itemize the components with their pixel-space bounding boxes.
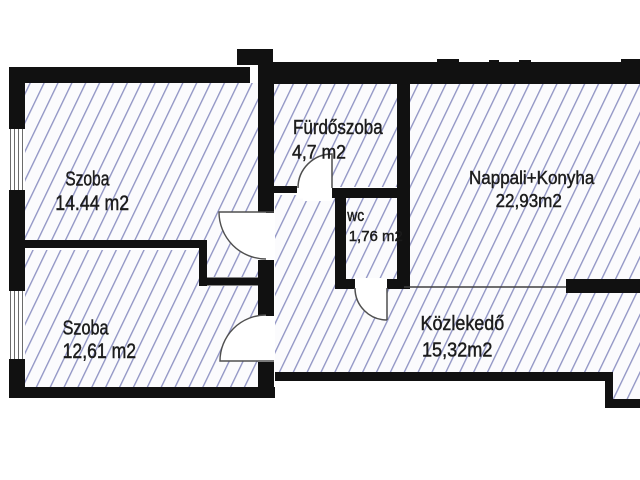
svg-text:wc: wc <box>346 207 364 225</box>
svg-text:Nappali+Konyha: Nappali+Konyha <box>469 167 594 188</box>
svg-text:22,93m2: 22,93m2 <box>496 190 562 211</box>
svg-text:1,76 m2: 1,76 m2 <box>349 228 403 245</box>
svg-text:Közlekedő: Közlekedő <box>421 313 505 335</box>
svg-text:Fürdőszoba: Fürdőszoba <box>293 116 383 139</box>
svg-text:15,32m2: 15,32m2 <box>422 340 492 362</box>
svg-text:4,7 m2: 4,7 m2 <box>292 141 346 163</box>
svg-text:Szoba: Szoba <box>63 317 110 339</box>
svg-text:12,61 m2: 12,61 m2 <box>63 340 136 364</box>
svg-text:14.44 m2: 14.44 m2 <box>55 192 129 216</box>
svg-text:Szoba: Szoba <box>65 167 109 189</box>
